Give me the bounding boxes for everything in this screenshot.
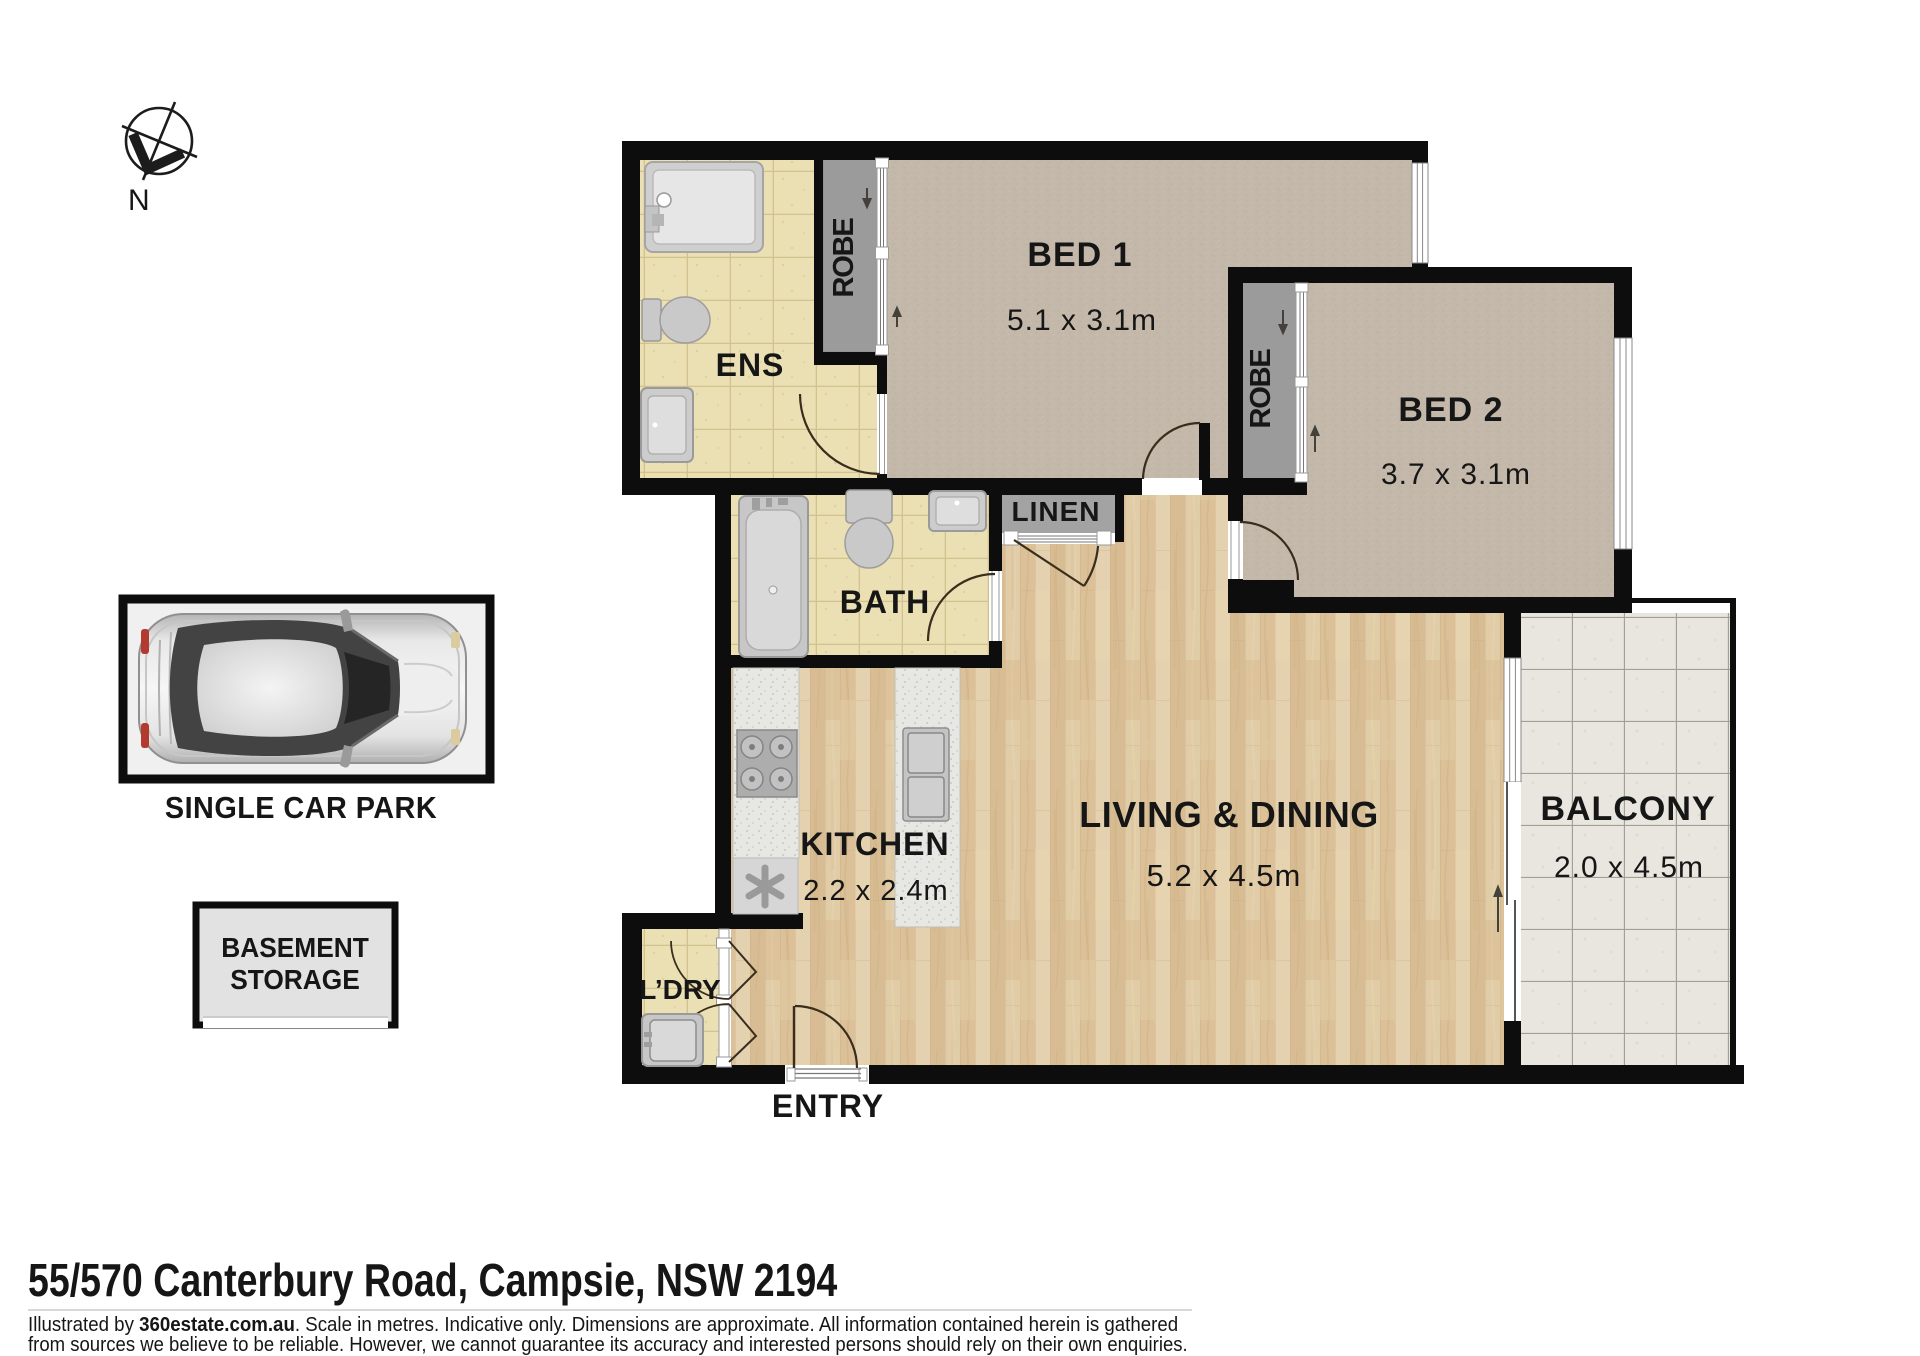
- svg-text:LIVING & DINING: LIVING & DINING: [1079, 794, 1379, 835]
- svg-text:ENS: ENS: [716, 347, 785, 383]
- svg-text:N: N: [128, 184, 150, 217]
- svg-text:LINEN: LINEN: [1012, 496, 1101, 527]
- svg-text:Illustrated by 360estate.com.a: Illustrated by 360estate.com.au. Scale i…: [28, 1313, 1178, 1336]
- svg-text:2.2 x 2.4m: 2.2 x 2.4m: [803, 875, 948, 907]
- svg-text:ENTRY: ENTRY: [772, 1088, 884, 1124]
- svg-text:STORAGE: STORAGE: [230, 963, 360, 995]
- svg-text:55/570 Canterbury Road, Campsi: 55/570 Canterbury Road, Campsie, NSW 219…: [28, 1254, 838, 1305]
- svg-text:3.7 x 3.1m: 3.7 x 3.1m: [1381, 458, 1531, 491]
- svg-text:BASEMENT: BASEMENT: [221, 931, 369, 963]
- svg-text:BED 2: BED 2: [1398, 391, 1503, 429]
- svg-text:5.1 x 3.1m: 5.1 x 3.1m: [1007, 304, 1157, 337]
- svg-text:ROBE: ROBE: [828, 218, 860, 298]
- svg-text:SINGLE CAR PARK: SINGLE CAR PARK: [165, 791, 437, 825]
- svg-text:BED 1: BED 1: [1027, 236, 1132, 274]
- svg-text:BATH: BATH: [840, 584, 931, 620]
- svg-text:BALCONY: BALCONY: [1540, 790, 1715, 828]
- svg-text:ROBE: ROBE: [1245, 349, 1277, 429]
- svg-text:2.0 x 4.5m: 2.0 x 4.5m: [1554, 851, 1704, 884]
- svg-text:5.2 x 4.5m: 5.2 x 4.5m: [1147, 858, 1302, 893]
- svg-text:from sources we believe to be: from sources we believe to be reliable. …: [28, 1334, 1188, 1356]
- svg-text:L’DRY: L’DRY: [639, 974, 721, 1005]
- svg-text:KITCHEN: KITCHEN: [800, 826, 949, 862]
